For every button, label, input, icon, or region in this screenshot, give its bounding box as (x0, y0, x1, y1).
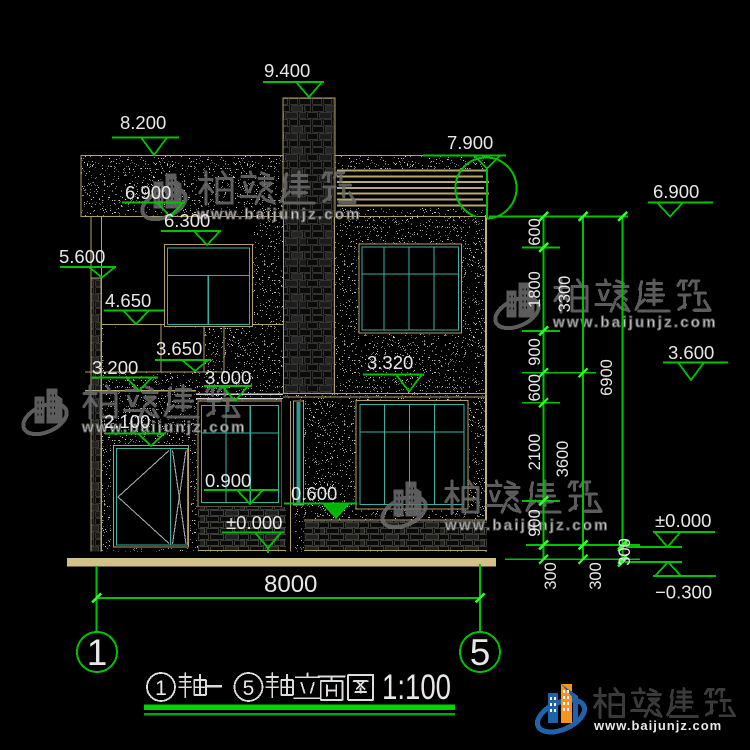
svg-text:9.400: 9.400 (264, 60, 310, 81)
svg-text:3.200: 3.200 (92, 357, 138, 378)
svg-text:www.baijunjz.com: www.baijunjz.com (196, 206, 362, 223)
svg-text:900: 900 (526, 338, 544, 366)
svg-text:6.300: 6.300 (164, 210, 210, 231)
svg-text:±0.000: ±0.000 (226, 512, 282, 533)
svg-text:3300: 3300 (556, 276, 574, 313)
svg-text:2.100: 2.100 (104, 411, 150, 432)
svg-text:2100: 2100 (526, 434, 544, 471)
svg-text:300: 300 (616, 538, 634, 566)
svg-text:3.650: 3.650 (156, 338, 202, 359)
svg-text:±0.000: ±0.000 (655, 510, 711, 531)
svg-text:5.600: 5.600 (59, 246, 105, 267)
svg-text:600: 600 (526, 218, 544, 246)
svg-text:6.900: 6.900 (125, 182, 171, 203)
svg-text:6.900: 6.900 (653, 181, 699, 202)
svg-text:5: 5 (470, 632, 491, 673)
svg-text:3.600: 3.600 (668, 342, 714, 363)
svg-text:3.320: 3.320 (367, 352, 413, 373)
svg-text:www.baijunjz.com: www.baijunjz.com (593, 718, 722, 733)
svg-text:300: 300 (587, 562, 605, 590)
svg-text:900: 900 (526, 509, 544, 537)
svg-text:www.baijunjz.com: www.baijunjz.com (552, 314, 718, 331)
svg-text:1800: 1800 (526, 271, 544, 308)
svg-text:4.650: 4.650 (105, 290, 151, 311)
svg-text:0.900: 0.900 (205, 470, 251, 491)
svg-text:6900: 6900 (598, 359, 616, 396)
svg-text:300: 300 (542, 562, 560, 590)
svg-text:3.000: 3.000 (205, 367, 251, 388)
svg-text:1: 1 (155, 677, 167, 700)
svg-text:5: 5 (243, 677, 255, 700)
svg-text:8000: 8000 (264, 571, 317, 598)
svg-text:7.900: 7.900 (447, 132, 493, 153)
svg-text:1: 1 (87, 632, 108, 673)
svg-text:3600: 3600 (554, 441, 572, 478)
svg-text:−0.300: −0.300 (655, 582, 712, 603)
svg-text:0.600: 0.600 (291, 483, 337, 504)
svg-text:600: 600 (526, 374, 544, 402)
svg-text:1:100: 1:100 (382, 668, 451, 707)
svg-text:8.200: 8.200 (120, 112, 166, 133)
